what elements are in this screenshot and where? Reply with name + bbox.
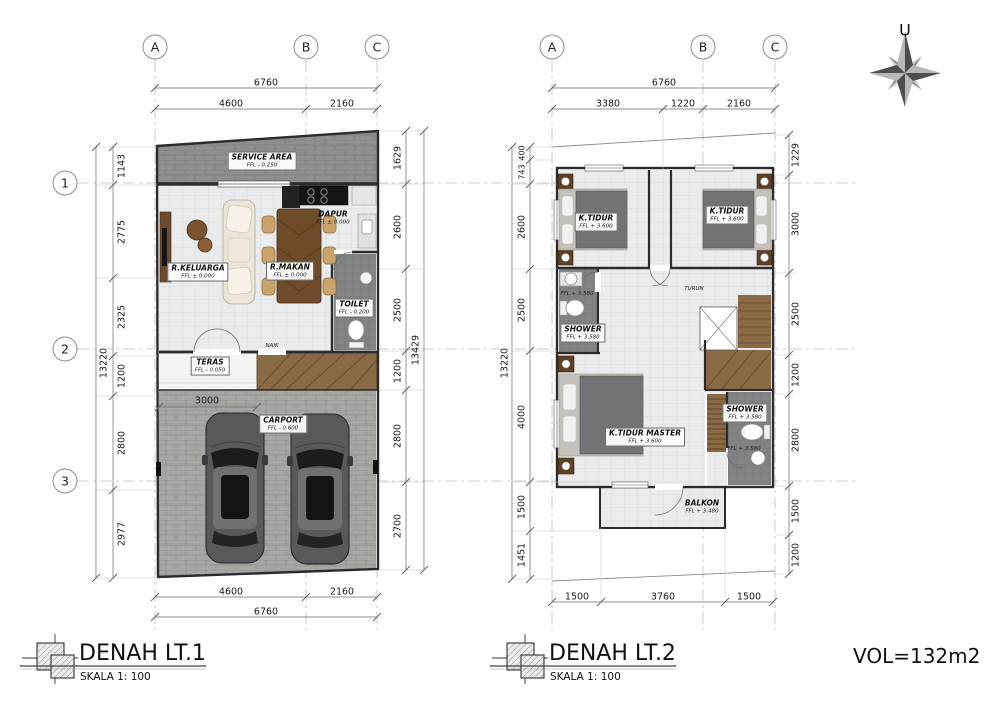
dim-label: 2977 [117, 522, 128, 546]
kitchen-cabinet [282, 186, 300, 208]
dim-label: 2800 [393, 424, 404, 448]
dim-label: 1500 [517, 495, 528, 519]
dim-label: 1200 [117, 364, 128, 388]
grid-col-c-plan1: C [365, 35, 390, 60]
room-label-toilet: TOILET FFL - 0.200 [335, 299, 374, 318]
bed-master [558, 356, 643, 474]
dim-label: 2500 [393, 298, 404, 322]
dim-label: 13220 [99, 348, 110, 378]
stair-note-naik: NAIK [265, 343, 278, 349]
room-label-k-tidur-master: K.TIDUR MASTER FFL + 3.600 [605, 428, 685, 447]
north-label: U [899, 21, 911, 40]
dim-label: 3760 [651, 592, 675, 603]
grid-col-a-plan1: A [143, 35, 168, 60]
room-label-k-tidur-1: K.TIDUR FFL + 3.600 [575, 213, 618, 232]
grid-col-b-plan2: B [691, 35, 716, 60]
dim-label: 2600 [517, 215, 528, 239]
dim-label: 2325 [117, 305, 128, 329]
dim-label: 3380 [596, 99, 620, 110]
dim-label: 1200 [393, 359, 404, 383]
dim-label: 4600 [219, 99, 243, 110]
volume-label: VOL=132m2 [853, 644, 980, 668]
ffl-tag: FFL + 3.580 [727, 446, 760, 452]
plan1-drawing [156, 131, 378, 577]
car-icon [287, 414, 353, 564]
dim-label: 1200 [791, 543, 802, 567]
dim-label: 2160 [727, 99, 751, 110]
room-label-balkon: BALKON FFL + 3.480 [685, 500, 719, 515]
dim-label: 6760 [254, 78, 278, 89]
toilet-icon [741, 424, 763, 440]
dim-label: 2160 [330, 587, 354, 598]
blueprint-page: A B C 1 2 3 A B C 6760 4600 2160 4600 21… [0, 0, 1000, 706]
dim-label: 2500 [517, 298, 528, 322]
washbasin-icon [751, 451, 765, 465]
dim-label: 1500 [565, 592, 589, 603]
dim-label: 2500 [791, 302, 802, 326]
dim-label: 2800 [117, 431, 128, 455]
dim-label: 1229 [791, 143, 802, 167]
room-label-carport: CARPORT FFL - 0.600 [259, 415, 307, 434]
car-icon [202, 413, 268, 563]
room-label-dapur: DAPUR FFL ± 0.000 [316, 211, 349, 226]
plan2-scale: SKALA 1: 100 [550, 671, 621, 683]
dim-label: 2160 [330, 99, 354, 110]
stair-note-turun: TURUN [684, 286, 703, 292]
dim-label: 1451 [517, 543, 528, 567]
dim-label: 2700 [393, 514, 404, 538]
room-label-service-area: SERVICE AREA FFL - 0.250 [228, 152, 297, 171]
room-label-teras: TERAS FFL - 0.050 [191, 357, 230, 376]
room-label-k-tidur-2: K.TIDUR FFL + 3.600 [706, 206, 749, 225]
dim-label: 6760 [652, 78, 676, 89]
room-label-r-makan: R.MAKAN FFL ± 0.000 [266, 262, 314, 281]
washbasin-icon [360, 272, 372, 284]
plan1-title: DENAH LT.1 [79, 641, 206, 666]
dining-table [277, 209, 321, 303]
plan2-drawing [552, 133, 776, 581]
ffl-tag: FFL + 3.580 [560, 291, 593, 297]
plan2-title: DENAH LT.2 [549, 641, 676, 666]
toilet-icon [566, 300, 584, 316]
dim-label: 1500 [791, 499, 802, 523]
washbasin-icon [565, 273, 577, 285]
grid-col-b-plan1: B [294, 35, 319, 60]
dim-label: 6760 [254, 607, 278, 618]
dim-label: 13220 [500, 348, 511, 378]
dim-label: 2800 [791, 428, 802, 452]
dim-label: 3000 [791, 212, 802, 236]
grid-row-1: 1 [53, 171, 78, 196]
dim-label: 1500 [737, 592, 761, 603]
dim-label: 743 [518, 164, 527, 179]
grid-row-3: 3 [53, 469, 78, 494]
coffee-table [187, 220, 207, 240]
grid-row-2: 2 [53, 337, 78, 362]
sink-icon [362, 220, 372, 234]
dim-label: 1200 [791, 363, 802, 387]
dim-label: 4000 [517, 405, 528, 429]
dim-label: 2600 [393, 215, 404, 239]
dim-label: 13429 [411, 335, 422, 365]
compass-icon [869, 31, 941, 107]
toilet-icon [348, 320, 364, 340]
room-label-r-keluarga: R.KELUARGA FFL ± 0.000 [167, 263, 228, 282]
dim-label: 1143 [117, 154, 128, 178]
dim-label: 3000 [195, 396, 219, 407]
dim-label: 2775 [117, 220, 128, 244]
grid-col-c-plan2: C [763, 35, 788, 60]
dim-label: 4600 [219, 587, 243, 598]
room-label-shower-2: SHOWER FFL + 3.580 [722, 404, 767, 423]
grid-col-a-plan2: A [540, 35, 565, 60]
plan1-scale: SKALA 1: 100 [80, 671, 151, 683]
dim-label: 400 [518, 145, 527, 160]
dim-label: 1220 [671, 99, 695, 110]
room-label-shower-1: SHOWER FFL + 3.580 [560, 324, 605, 343]
dim-label: 1629 [393, 146, 404, 170]
